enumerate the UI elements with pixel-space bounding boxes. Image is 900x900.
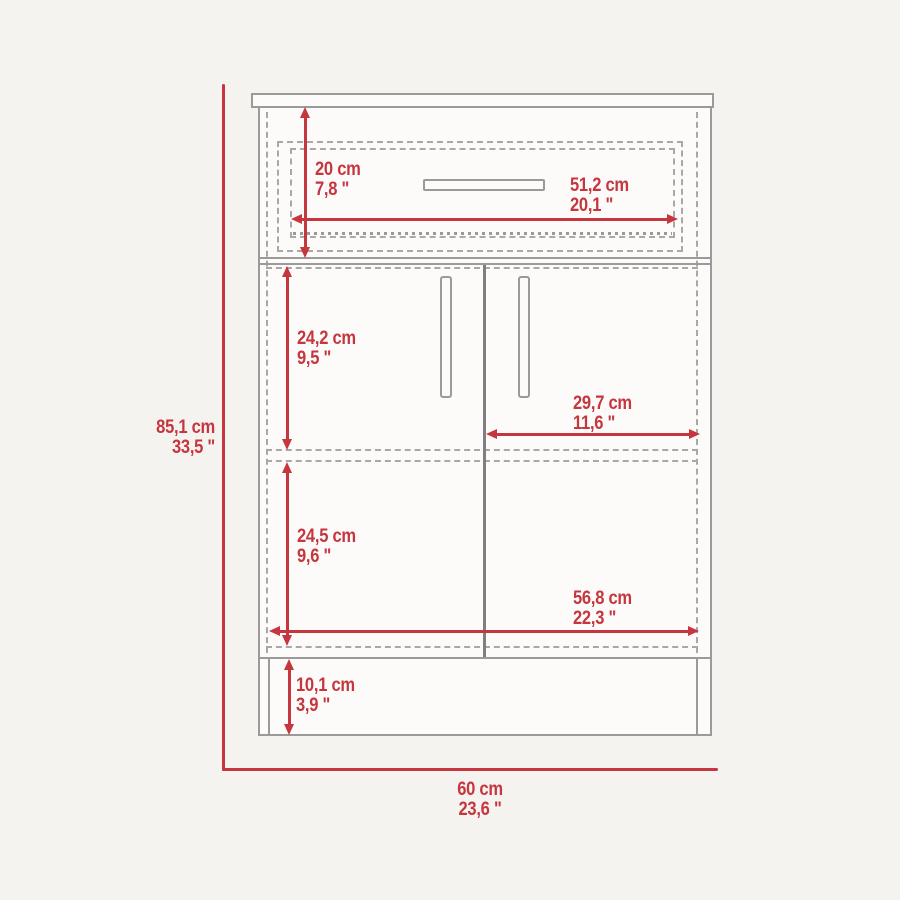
base-height-inch: 3,9 ": [296, 696, 355, 716]
lower-section-height-label: 24,5 cm 9,6 ": [297, 527, 356, 567]
arrowhead-right-icon: [689, 429, 700, 439]
plinth-right-inset: [696, 659, 698, 735]
upper-section-height-cm: 24,2 cm: [297, 329, 356, 349]
drawer-height-inch: 7,8 ": [315, 180, 361, 200]
arrow-line: [299, 218, 670, 221]
base-height-arrow: [284, 659, 294, 735]
arrowhead-right-icon: [688, 626, 699, 636]
overall-height-extension-line: [222, 84, 225, 771]
overall-height-label: 85,1 cm 33,5 ": [124, 418, 215, 458]
middle-shelf-dashed-lower: [266, 460, 698, 462]
upper-section-height-inch: 9,5 ": [297, 349, 356, 369]
interior-width-label: 56,8 cm 22,3 ": [573, 589, 632, 629]
arrow-line: [288, 667, 291, 727]
arrow-line: [286, 274, 289, 442]
drawer-width-label: 51,2 cm 20,1 ": [570, 176, 629, 216]
overall-width-inch: 23,6 ": [428, 800, 532, 820]
shelf-divider-top-line: [258, 257, 712, 259]
doors-bottom-dashed-guide: [266, 646, 698, 648]
lower-section-height-arrow: [282, 462, 292, 646]
arrow-line: [286, 470, 289, 638]
arrowhead-down-icon: [282, 439, 292, 450]
arrowhead-down-icon: [284, 724, 294, 735]
door-width-label: 29,7 cm 11,6 ": [573, 394, 632, 434]
drawer-height-label: 20 cm 7,8 ": [315, 160, 361, 200]
lower-section-height-cm: 24,5 cm: [297, 527, 356, 547]
arrow-line: [304, 115, 307, 250]
overall-height-cm: 85,1 cm: [124, 418, 215, 438]
plinth-top-line: [258, 657, 712, 659]
right-edge-dashed-guide: [696, 112, 698, 653]
left-door-handle: [440, 276, 452, 398]
upper-section-height-arrow: [282, 266, 292, 450]
overall-width-label: 60 cm 23,6 ": [428, 780, 532, 820]
base-height-cm: 10,1 cm: [296, 676, 355, 696]
arrowhead-down-icon: [300, 247, 310, 258]
dimension-diagram: 85,1 cm 33,5 " 60 cm 23,6 " 20 cm 7,8 " …: [0, 0, 900, 900]
base-height-label: 10,1 cm 3,9 ": [296, 676, 355, 716]
interior-width-inch: 22,3 ": [573, 609, 632, 629]
left-edge-dashed-guide: [266, 112, 268, 653]
drawer-slide-hatch: [293, 232, 672, 235]
door-width-inch: 11,6 ": [573, 414, 632, 434]
upper-section-height-label: 24,2 cm 9,5 ": [297, 329, 356, 369]
interior-width-arrow: [269, 626, 699, 636]
drawer-width-inch: 20,1 ": [570, 196, 629, 216]
arrow-line: [277, 630, 691, 633]
door-width-cm: 29,7 cm: [573, 394, 632, 414]
drawer-width-cm: 51,2 cm: [570, 176, 629, 196]
doors-top-dashed-guide: [266, 267, 698, 269]
drawer-handle: [423, 179, 545, 191]
lower-section-height-inch: 9,6 ": [297, 547, 356, 567]
right-door-handle: [518, 276, 530, 398]
drawer-height-arrow: [300, 107, 310, 258]
middle-shelf-dashed-upper: [266, 449, 698, 451]
overall-height-inch: 33,5 ": [124, 438, 215, 458]
plinth-left-inset: [268, 659, 270, 735]
drawer-height-cm: 20 cm: [315, 160, 361, 180]
center-door-seam: [483, 265, 486, 658]
interior-width-cm: 56,8 cm: [573, 589, 632, 609]
arrowhead-right-icon: [667, 214, 678, 224]
arrowhead-down-icon: [282, 635, 292, 646]
overall-width-cm: 60 cm: [428, 780, 532, 800]
overall-width-extension-line: [222, 768, 718, 771]
